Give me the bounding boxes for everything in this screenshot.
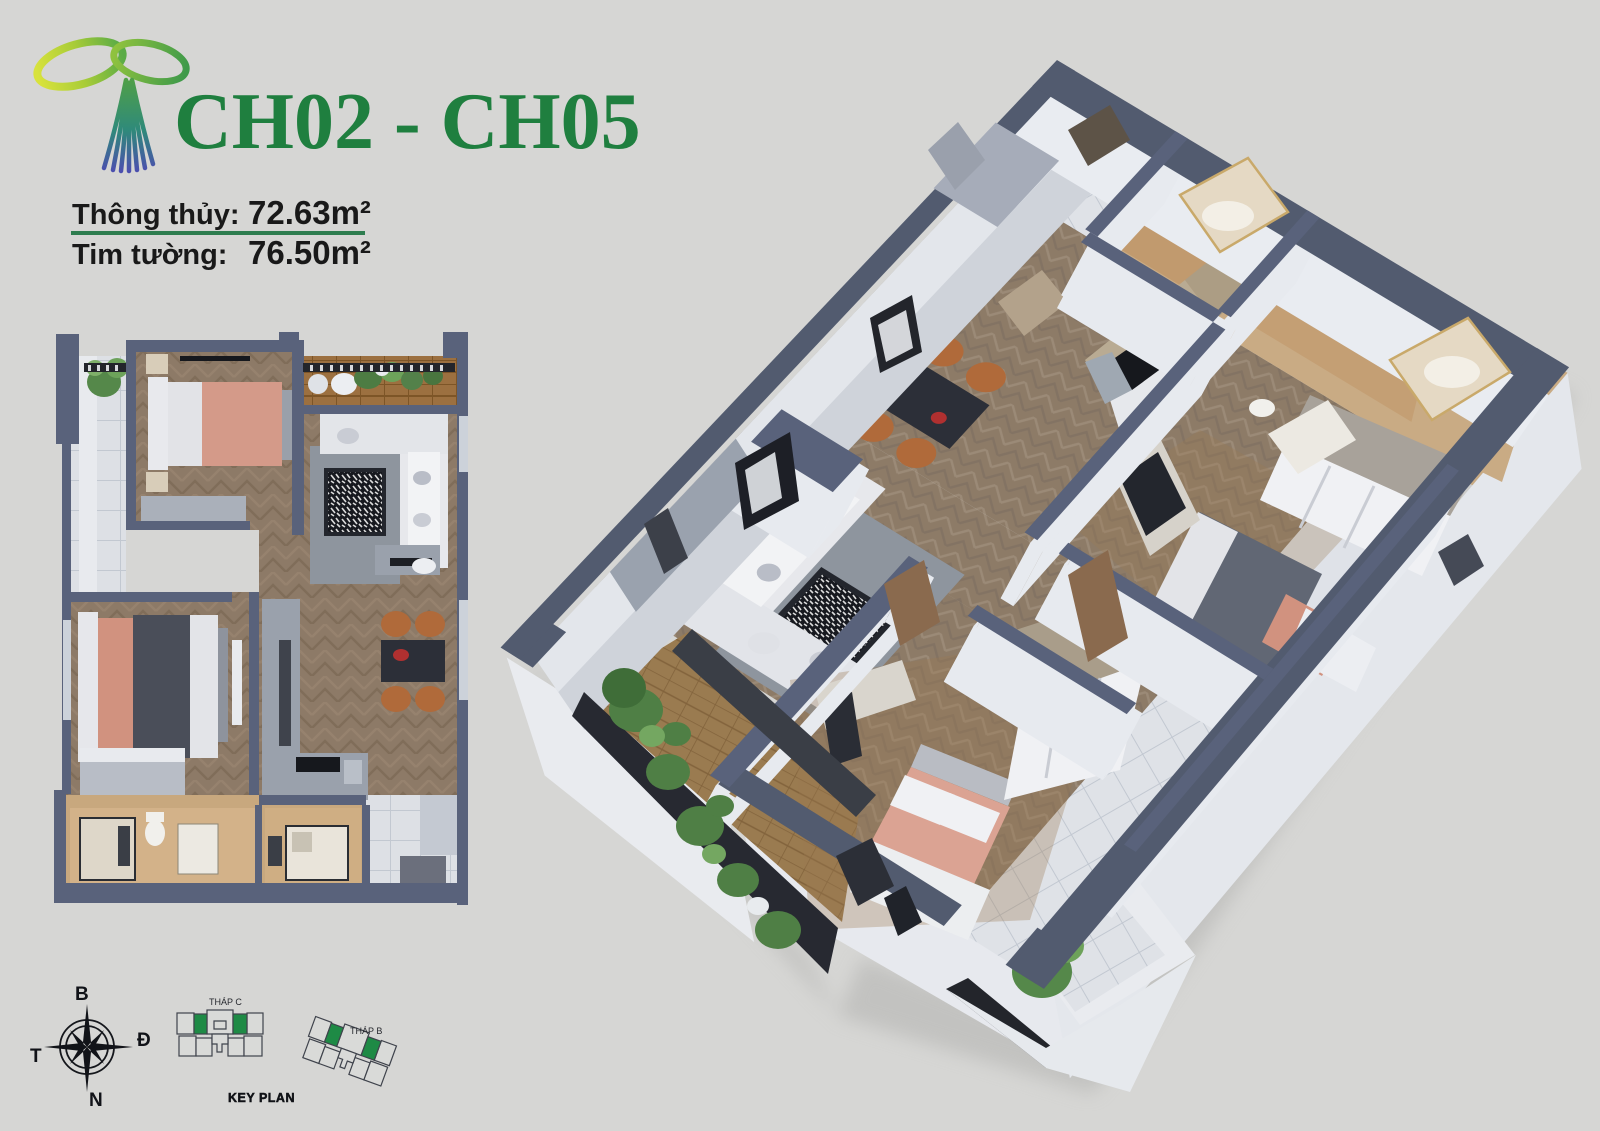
- svg-text:76.50m²: 76.50m²: [248, 234, 371, 271]
- svg-text:CH02 - CH05: CH02 - CH05: [174, 78, 641, 166]
- svg-text:KEY PLAN: KEY PLAN: [228, 1091, 295, 1105]
- svg-text:T: T: [30, 1046, 42, 1067]
- svg-text:B: B: [75, 984, 89, 1005]
- svg-text:Tim tường:: Tim tường:: [72, 239, 227, 271]
- svg-text:N: N: [89, 1090, 103, 1111]
- svg-text:Đ: Đ: [137, 1030, 151, 1051]
- svg-text:THÁP B: THÁP B: [350, 1026, 382, 1036]
- svg-text:THÁP C: THÁP C: [209, 997, 242, 1007]
- svg-text:Thông thủy:: Thông thủy:: [72, 199, 240, 231]
- svg-text:72.63m²: 72.63m²: [248, 194, 371, 231]
